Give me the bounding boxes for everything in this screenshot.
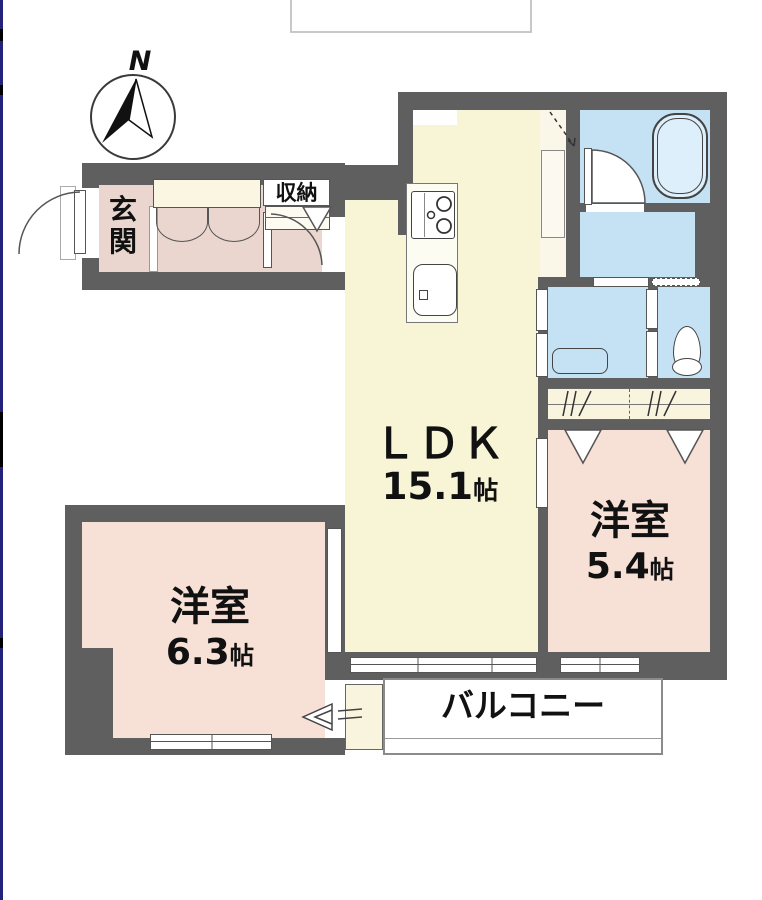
stove-knob [428,212,435,219]
storage-door-triangle [303,207,331,231]
nook-line [338,717,362,719]
room-label-bedroom-a: 洋室 [560,500,700,542]
floor-plan: N [0,0,762,900]
room-size-bedroom-a: 5.4帖 [560,548,700,586]
room-label-balcony: バルコニー [393,689,653,724]
closet-door-triangle [667,430,703,463]
room-label-bedroom-b: 洋室 [140,586,280,628]
room-size-ldk: 15.1帖 [370,468,510,507]
nook-chevron [303,704,332,730]
room-size-bedroom-b: 6.3帖 [140,634,280,672]
nook-line [338,709,362,711]
closet-hanger-mark [648,391,676,416]
room-label-storage: 収納 [264,182,329,204]
bath-door-arc [592,150,645,203]
room-label-entrance: 玄関 [106,194,140,258]
entrance-door-arc [19,192,80,254]
hall-dashed-mark [550,112,574,146]
stove-burner [437,219,451,233]
closet-hanger-mark [563,391,591,416]
stove-burner [437,197,451,211]
closet-door-triangle [565,430,601,463]
room-label-ldk: ＬＤＫ [370,422,510,466]
